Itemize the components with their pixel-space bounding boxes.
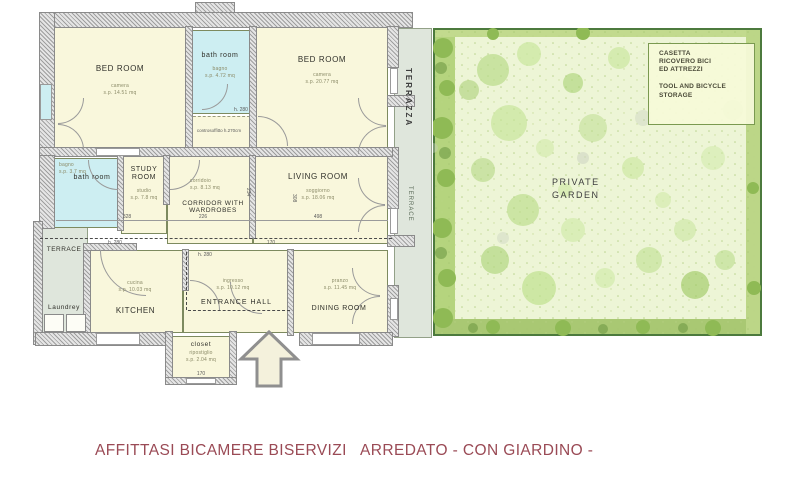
dimension-text: 170: [258, 240, 284, 246]
label-private-garden: PRIVATE GARDEN: [552, 176, 600, 202]
dimension-text: 498: [303, 214, 333, 220]
window: [312, 333, 360, 345]
wall-segment: [288, 250, 293, 335]
label-laundry: Laundrey: [40, 304, 88, 311]
window: [96, 333, 140, 345]
floor-plan-page: BED ROOM cameras.p. 14.51 mq bath room b…: [0, 0, 800, 486]
label-entrance: ENTRANCE HALL: [183, 299, 290, 307]
dashed-line: [40, 238, 392, 239]
sublabel-living: soggiornos.p. 18.06 mq: [253, 188, 383, 201]
room-hall-ceiling: [188, 116, 250, 152]
dimension-text: 226: [188, 214, 218, 220]
sublabel-bedroom2: cameras.p. 20.77 mq: [256, 72, 388, 85]
dimension-text: 308: [291, 194, 297, 202]
label-terrace-right: TERRACE: [407, 186, 413, 222]
label-kitchen: KITCHEN: [88, 306, 183, 315]
label-living: LIVING ROOM: [253, 172, 383, 181]
height-note: h. 280: [190, 252, 220, 258]
sublabel-closet: ripostiglios.p. 2.04 mq: [172, 350, 230, 363]
height-note: h. 280: [226, 107, 256, 113]
wall-segment: [250, 27, 256, 148]
dimension-text: 234: [245, 188, 251, 196]
dimension-line: [56, 220, 388, 221]
window: [96, 148, 140, 156]
window: [390, 208, 398, 234]
label-dining: DINING ROOM: [290, 305, 388, 313]
sublabel-bedroom1: cameras.p. 14.51 mq: [54, 83, 186, 96]
dimension-text: 170: [172, 371, 230, 377]
garden-storage-box: CASETTA RICOVERO BICI ED ATTREZZI TOOL A…: [648, 43, 755, 125]
label-bathroom2: bath room: [66, 174, 118, 182]
sublabel-corridor: corridoios.p. 8.13 mq: [190, 178, 250, 191]
ceiling-note: controsoffitto h.270cm: [189, 128, 249, 133]
wall-segment: [40, 156, 54, 228]
listing-caption: AFFITTASI BICAMERE BISERVIZI ARREDATO - …: [95, 396, 593, 486]
laundry-appliance: [66, 314, 86, 332]
label-terrazza: TERRAZZA: [404, 68, 413, 127]
height-note: h. 280: [100, 240, 130, 246]
dimension-text: 328: [112, 214, 142, 220]
label-study: STUDY ROOM: [121, 166, 167, 182]
dashed-line: [188, 310, 290, 311]
wall-segment: [40, 13, 412, 27]
window: [40, 84, 52, 120]
wall-segment: [40, 148, 392, 156]
label-corridor: CORRIDOR WITH WARDROBES: [176, 200, 250, 215]
laundry-appliance: [44, 314, 64, 332]
sublabel-kitchen: cucinas.p. 10.03 mq: [95, 280, 175, 293]
label-closet: closet: [172, 341, 230, 348]
window: [390, 68, 398, 94]
window: [186, 378, 216, 384]
sublabel-bathroom1: bagnos.p. 4.72 mq: [190, 66, 250, 79]
label-bathroom1: bath room: [190, 52, 250, 60]
sublabel-entrance: ingressos.p. 10.12 mq: [193, 278, 273, 291]
label-bedroom2: BED ROOM: [256, 55, 388, 64]
sublabel-dining: pranzos.p. 11.45 mq: [300, 278, 380, 291]
sublabel-study: studios.p. 7.8 mq: [121, 188, 167, 201]
wall-segment: [34, 222, 42, 344]
window: [390, 298, 398, 320]
label-bedroom1: BED ROOM: [54, 64, 186, 73]
caption-line1: AFFITTASI BICAMERE BISERVIZI ARREDATO - …: [95, 440, 593, 462]
wall-segment: [388, 27, 398, 67]
terrace-strip-right: [394, 28, 432, 338]
storage-label-it: CASETTA RICOVERO BICI ED ATTREZZI: [659, 50, 754, 74]
wall-segment: [388, 148, 398, 208]
entrance-arrow-icon: [236, 328, 302, 390]
storage-label-en: TOOL AND BICYCLE STORAGE: [659, 83, 754, 99]
label-terrace-left: TERRACE: [42, 246, 86, 253]
